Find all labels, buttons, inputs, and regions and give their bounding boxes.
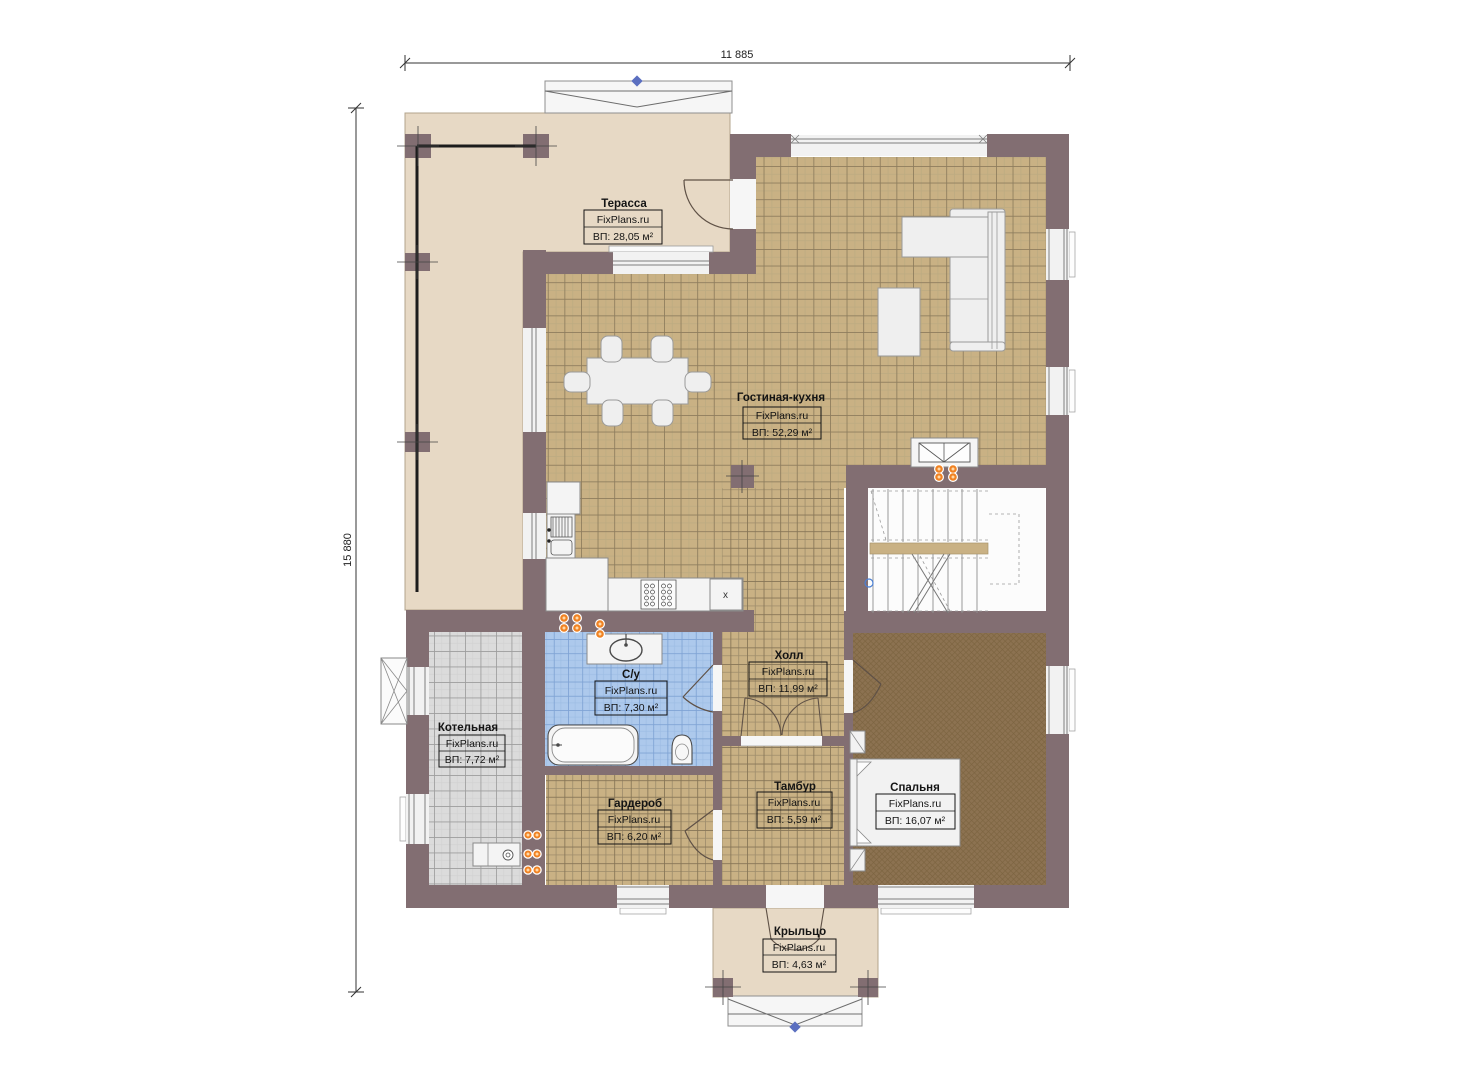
svg-text:Холл: Холл <box>775 650 804 662</box>
svg-text:Терасса: Терасса <box>601 198 647 210</box>
svg-text:Котельная: Котельная <box>438 722 498 734</box>
svg-text:ВП: 11,99 м²: ВП: 11,99 м² <box>758 683 818 695</box>
svg-text:FixPlans.ru: FixPlans.ru <box>446 738 499 750</box>
svg-text:Гардероб: Гардероб <box>608 798 662 810</box>
svg-text:11 885: 11 885 <box>721 49 754 61</box>
svg-text:ВП: 52,29 м²: ВП: 52,29 м² <box>752 427 813 439</box>
svg-text:ВП: 4,63 м²: ВП: 4,63 м² <box>772 959 827 971</box>
svg-text:FixPlans.ru: FixPlans.ru <box>762 666 815 678</box>
svg-text:ВП: 7,72 м²: ВП: 7,72 м² <box>445 754 500 766</box>
svg-text:ВП: 5,59 м²: ВП: 5,59 м² <box>767 814 822 826</box>
svg-text:FixPlans.ru: FixPlans.ru <box>889 798 942 810</box>
svg-text:С/у: С/у <box>622 669 641 681</box>
svg-text:FixPlans.ru: FixPlans.ru <box>773 942 826 954</box>
svg-text:Спальня: Спальня <box>890 782 940 794</box>
svg-text:FixPlans.ru: FixPlans.ru <box>756 410 809 422</box>
svg-text:Тамбур: Тамбур <box>774 781 816 793</box>
svg-text:FixPlans.ru: FixPlans.ru <box>768 797 821 809</box>
svg-text:FixPlans.ru: FixPlans.ru <box>605 685 658 697</box>
svg-text:ВП: 6,20 м²: ВП: 6,20 м² <box>607 831 662 843</box>
svg-text:x: x <box>723 590 728 601</box>
svg-text:Гостиная-кухня: Гостиная-кухня <box>737 392 825 404</box>
svg-text:FixPlans.ru: FixPlans.ru <box>597 214 650 226</box>
svg-text:15 880: 15 880 <box>342 533 354 567</box>
svg-text:ВП: 7,30 м²: ВП: 7,30 м² <box>604 702 659 714</box>
svg-text:ВП: 28,05 м²: ВП: 28,05 м² <box>593 231 654 243</box>
svg-text:Крыльцо: Крыльцо <box>774 926 826 938</box>
svg-text:FixPlans.ru: FixPlans.ru <box>608 814 661 826</box>
svg-text:ВП: 16,07 м²: ВП: 16,07 м² <box>885 815 946 827</box>
